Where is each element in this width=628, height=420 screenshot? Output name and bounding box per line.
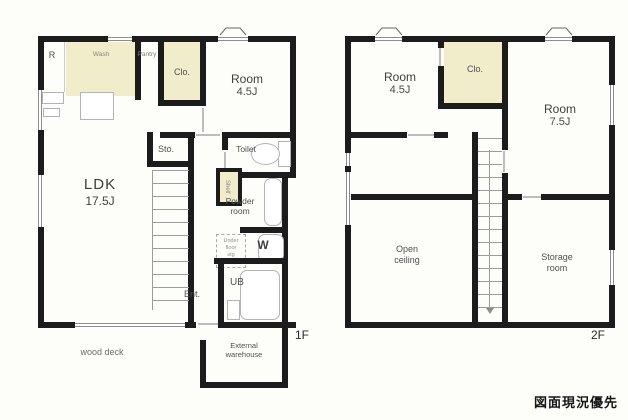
kitchen-counter-fixture bbox=[43, 108, 60, 117]
room-size: 4.5J bbox=[208, 86, 286, 99]
wall bbox=[200, 382, 288, 388]
storage-room-label: Storage room bbox=[511, 252, 603, 274]
wall bbox=[147, 161, 194, 167]
label-line: room bbox=[208, 206, 272, 216]
wall bbox=[135, 36, 141, 100]
stairs bbox=[478, 138, 502, 320]
door-line bbox=[202, 108, 204, 132]
label-line: Open bbox=[361, 244, 453, 255]
room-size: 4.5J bbox=[363, 84, 437, 97]
door-line bbox=[523, 196, 541, 198]
wall bbox=[345, 322, 615, 328]
window bbox=[610, 250, 614, 285]
label-line: Storage bbox=[511, 252, 603, 263]
entrance-label: Ent. bbox=[172, 289, 212, 300]
wall bbox=[158, 100, 206, 106]
window bbox=[545, 37, 572, 41]
wall bbox=[240, 227, 282, 233]
wall bbox=[438, 36, 444, 48]
room1-label-2f: Room 4.5J bbox=[363, 70, 437, 98]
wall bbox=[214, 258, 288, 264]
floor-label-2f: 2F bbox=[582, 328, 614, 342]
powder-room-label: Powder room bbox=[208, 196, 272, 216]
fridge-label: R bbox=[42, 50, 62, 61]
window-awning-icon bbox=[375, 27, 403, 36]
wall bbox=[508, 194, 522, 200]
window bbox=[610, 85, 614, 125]
wall bbox=[402, 36, 545, 42]
wall bbox=[185, 322, 196, 328]
label-line: room bbox=[511, 263, 603, 274]
wall bbox=[345, 132, 407, 138]
wall bbox=[200, 36, 206, 106]
room-name: LDK bbox=[58, 176, 142, 194]
window-awning-icon bbox=[219, 27, 247, 36]
room-label-1f: Room 4.5J bbox=[208, 72, 286, 100]
toilet-label: Toilet bbox=[224, 144, 268, 154]
wall bbox=[38, 322, 75, 328]
wall bbox=[248, 36, 296, 42]
floorplan-canvas: Shelf Under floor stg R Wash Pantry Clo.… bbox=[0, 0, 628, 420]
door-line bbox=[439, 48, 441, 66]
wall bbox=[38, 36, 44, 90]
door-line bbox=[408, 134, 434, 136]
room-name: Room bbox=[521, 102, 599, 116]
washer-label: W bbox=[250, 238, 276, 252]
stairs-arrow-head bbox=[486, 308, 494, 314]
wall bbox=[502, 36, 508, 150]
wall bbox=[38, 36, 108, 42]
wall bbox=[541, 194, 615, 200]
label-line: warehouse bbox=[202, 350, 286, 359]
window bbox=[346, 153, 350, 225]
wall bbox=[609, 125, 615, 250]
bath-label: UB bbox=[218, 277, 256, 289]
wall bbox=[38, 130, 44, 175]
window-mullion bbox=[345, 166, 351, 172]
door-line bbox=[503, 151, 505, 172]
room-name: Room bbox=[363, 70, 437, 84]
stairs-arrow bbox=[489, 150, 490, 310]
storage-label-1f: Sto. bbox=[145, 144, 187, 155]
label-line: Under bbox=[217, 238, 245, 245]
kitchen-label: Wash bbox=[80, 51, 122, 59]
wall bbox=[222, 132, 296, 138]
label-line: ceiling bbox=[361, 255, 453, 266]
room-size: 17.5J bbox=[58, 194, 142, 208]
window bbox=[75, 323, 185, 327]
window bbox=[108, 37, 132, 41]
floor-label-1f: 1F bbox=[286, 328, 318, 342]
door-line bbox=[196, 134, 220, 136]
label-line: Powder bbox=[208, 196, 272, 206]
wood-deck-label: wood deck bbox=[56, 347, 148, 358]
label-line: floor bbox=[217, 245, 245, 252]
open-ceiling-label: Open ceiling bbox=[361, 244, 453, 266]
priority-note: 図面現況優先 bbox=[534, 392, 618, 411]
room2-label-2f: Room 7.5J bbox=[521, 102, 599, 130]
ldk-label: LDK 17.5J bbox=[58, 176, 142, 208]
wall bbox=[218, 258, 224, 328]
warehouse-label: External warehouse bbox=[202, 341, 286, 359]
window-awning-icon bbox=[545, 27, 573, 36]
label-line: External bbox=[202, 341, 286, 350]
entrance-door bbox=[198, 323, 220, 325]
closet-label-2f: Clo. bbox=[446, 64, 504, 75]
room-name: Room bbox=[208, 72, 286, 86]
room-size: 7.5J bbox=[521, 116, 599, 129]
wall bbox=[351, 194, 472, 200]
window bbox=[218, 37, 248, 41]
divider bbox=[64, 42, 65, 92]
pantry-label: Pantry bbox=[132, 51, 162, 59]
kitchen-island-fixture bbox=[80, 92, 114, 120]
closet-label-1f: Clo. bbox=[164, 67, 200, 78]
window bbox=[375, 37, 402, 41]
wall bbox=[345, 225, 351, 328]
wall bbox=[438, 103, 508, 109]
wall bbox=[434, 132, 448, 138]
kitchen-counter-fixture bbox=[42, 92, 64, 104]
wall bbox=[38, 227, 44, 328]
bath-floor-fixture bbox=[227, 300, 240, 320]
wall bbox=[609, 36, 615, 85]
window bbox=[38, 175, 42, 227]
